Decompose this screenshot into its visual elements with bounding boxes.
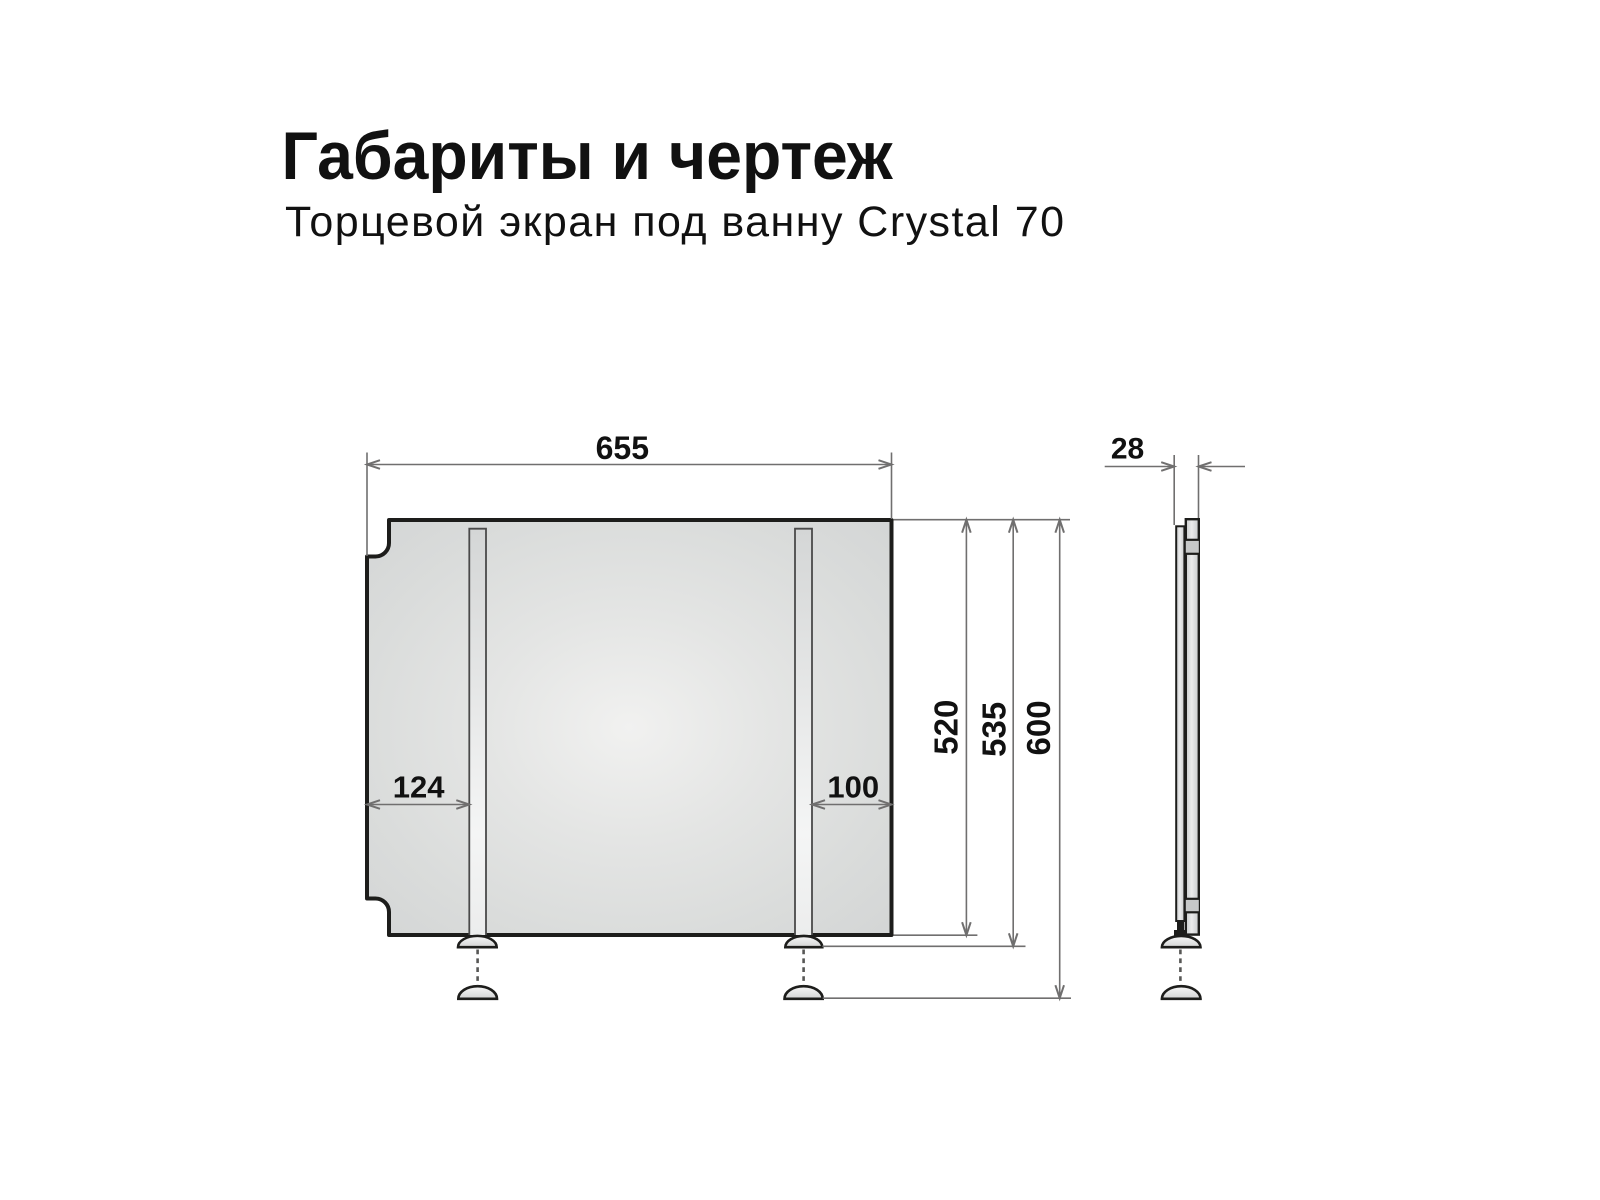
svg-text:520: 520 — [928, 700, 965, 755]
svg-text:100: 100 — [827, 770, 879, 805]
svg-text:Габариты и чертеж: Габариты и чертеж — [282, 118, 894, 194]
svg-text:655: 655 — [596, 430, 649, 466]
svg-text:28: 28 — [1111, 433, 1144, 466]
svg-text:124: 124 — [393, 770, 445, 805]
svg-text:535: 535 — [976, 702, 1013, 757]
svg-text:Торцевой экран под ванну Cryst: Торцевой экран под ванну Crystal 70 — [285, 198, 1064, 246]
svg-text:600: 600 — [1020, 700, 1057, 755]
